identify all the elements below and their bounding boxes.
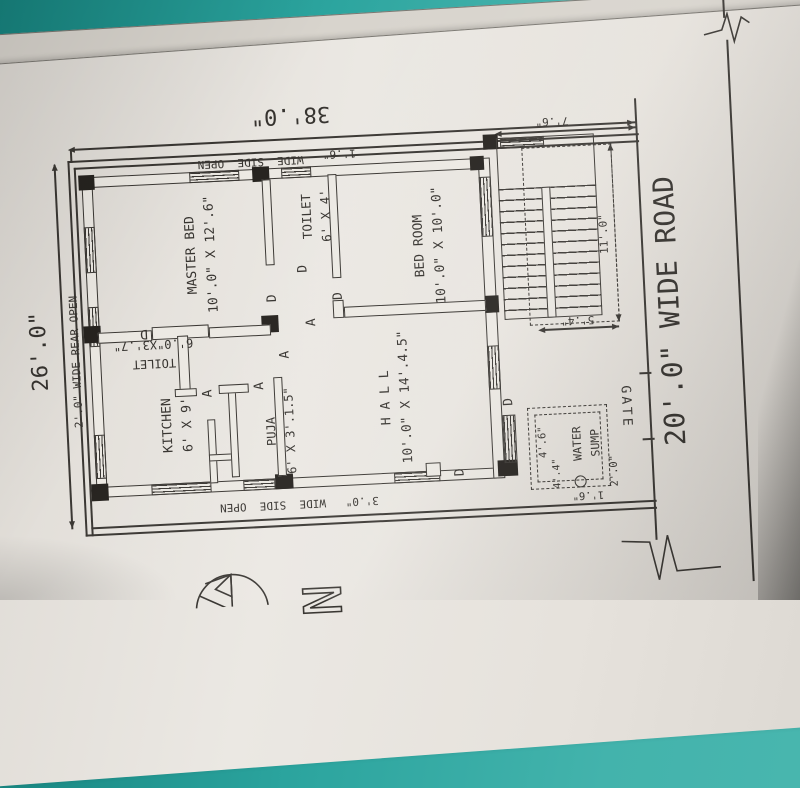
dim-stair-length: 11'.0": [596, 214, 611, 254]
room-label-kitchen: KITCHEN6' X 9': [127, 397, 200, 455]
arrow: [69, 521, 75, 528]
dim-sump-h: 4'.4": [551, 458, 563, 489]
arrow: [538, 326, 545, 332]
arch-marker: A: [304, 318, 319, 327]
wall-exterior-right-lower: [485, 311, 505, 478]
window: [94, 435, 107, 479]
room-label-puja: PUJA6' X 3'.1.5": [232, 387, 301, 477]
window: [151, 481, 211, 495]
window: [487, 345, 501, 390]
window: [189, 170, 239, 183]
room-label-toilet-attached: TOILET6' X 4': [266, 189, 337, 245]
gate-tick: [639, 372, 651, 375]
arch-marker: A: [252, 382, 267, 391]
column: [470, 156, 485, 171]
label-water-sump: WATERSUMP: [540, 425, 605, 463]
dim-stair-width: 7'.6": [535, 114, 569, 129]
window: [281, 166, 312, 178]
arrow: [612, 323, 619, 329]
road-break-symbol: [701, 11, 753, 49]
road-break-symbol: [619, 528, 732, 587]
label-gate: GATE: [618, 385, 635, 429]
dim-gate: 2'.0": [607, 455, 621, 487]
wall-masterbed-bottom: [209, 324, 271, 338]
dim-38: 38'.0": [250, 101, 331, 130]
shadow-bottom-left: [0, 535, 180, 600]
label-road: 20'.0" WIDE ROAD: [646, 175, 692, 446]
door-marker: D: [265, 294, 280, 303]
door-leaf-open: [502, 415, 517, 464]
window: [84, 227, 97, 273]
room-label-master-bed: MASTER BED10'.0" X 12'.6": [149, 195, 225, 316]
wall-stub: [332, 300, 344, 319]
room-label-hall: H A L L10'.0" X 14'.4.5": [343, 330, 420, 466]
door-marker: D: [452, 468, 467, 477]
arch-marker: A: [200, 389, 215, 398]
arrow: [51, 164, 57, 171]
window: [243, 478, 275, 491]
arrow: [68, 146, 75, 152]
door-marker: D: [140, 326, 149, 341]
arrow: [628, 124, 635, 130]
door-marker: D: [501, 398, 516, 407]
arch-marker: A: [277, 350, 292, 359]
door-leaf: [426, 462, 442, 477]
room-label-toilet-common: TOILET6'.0"X3'.7": [113, 334, 196, 403]
label-side-open-bottom: 3'.0" WIDE SIDE OPEN: [220, 494, 379, 515]
road-edge-far: [726, 40, 754, 581]
door-marker: D: [295, 264, 310, 273]
gate-tick: [643, 438, 655, 441]
door-marker: D: [331, 292, 346, 301]
dim-26: 26'.0": [25, 311, 54, 392]
room-label-bedroom: BED ROOM10'.0" X 10'.0": [377, 186, 453, 307]
site-boundary: [86, 507, 657, 537]
north-letter: N: [289, 583, 350, 617]
north-arrow-icon: [184, 563, 306, 609]
window: [479, 176, 494, 237]
column: [484, 295, 499, 313]
floor-plan: N 38'.0" 26'.0" 1'.6" WIDE SIDE OPEN 2'.…: [0, 0, 800, 617]
dim-pit: 1'.6": [572, 488, 604, 502]
paper-edge-shadow-right: [758, 260, 800, 600]
column: [91, 484, 109, 502]
column: [78, 175, 95, 191]
dim-side-open-width: 1'.6": [322, 147, 356, 162]
dim-yard: 5'.4": [561, 313, 595, 328]
wall-kitchen-right: [207, 419, 218, 483]
